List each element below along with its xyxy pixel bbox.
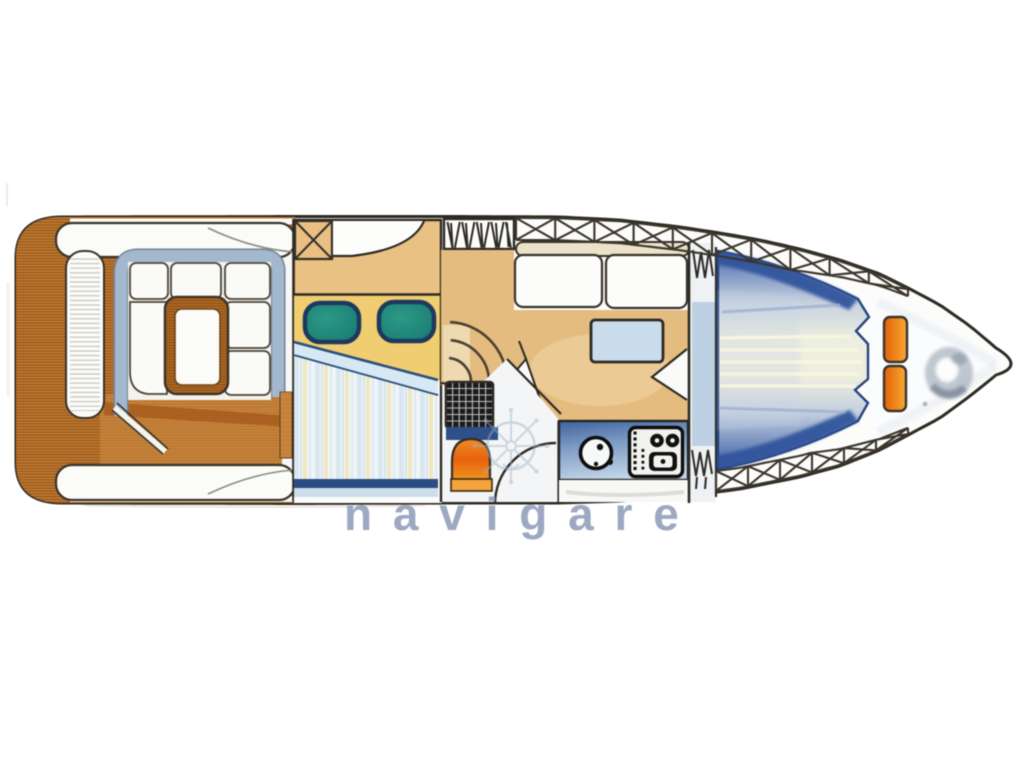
svg-text:navigare: navigare	[344, 488, 700, 540]
